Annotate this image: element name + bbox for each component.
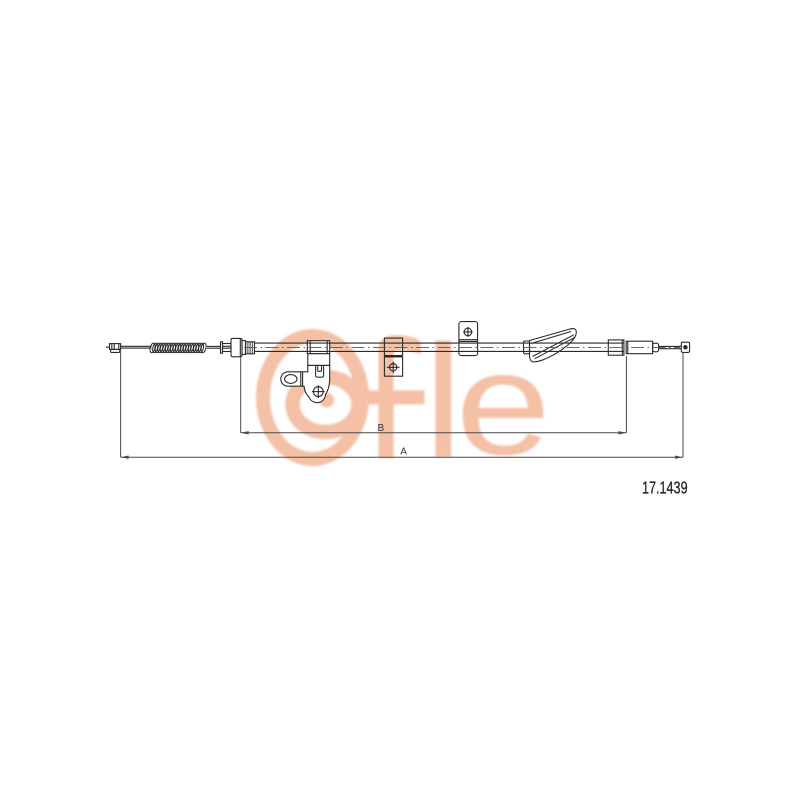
svg-text:A: A [400,447,407,458]
svg-text:17.1439: 17.1439 [642,479,688,498]
svg-text:e: e [456,321,552,485]
svg-text:B: B [378,423,385,434]
